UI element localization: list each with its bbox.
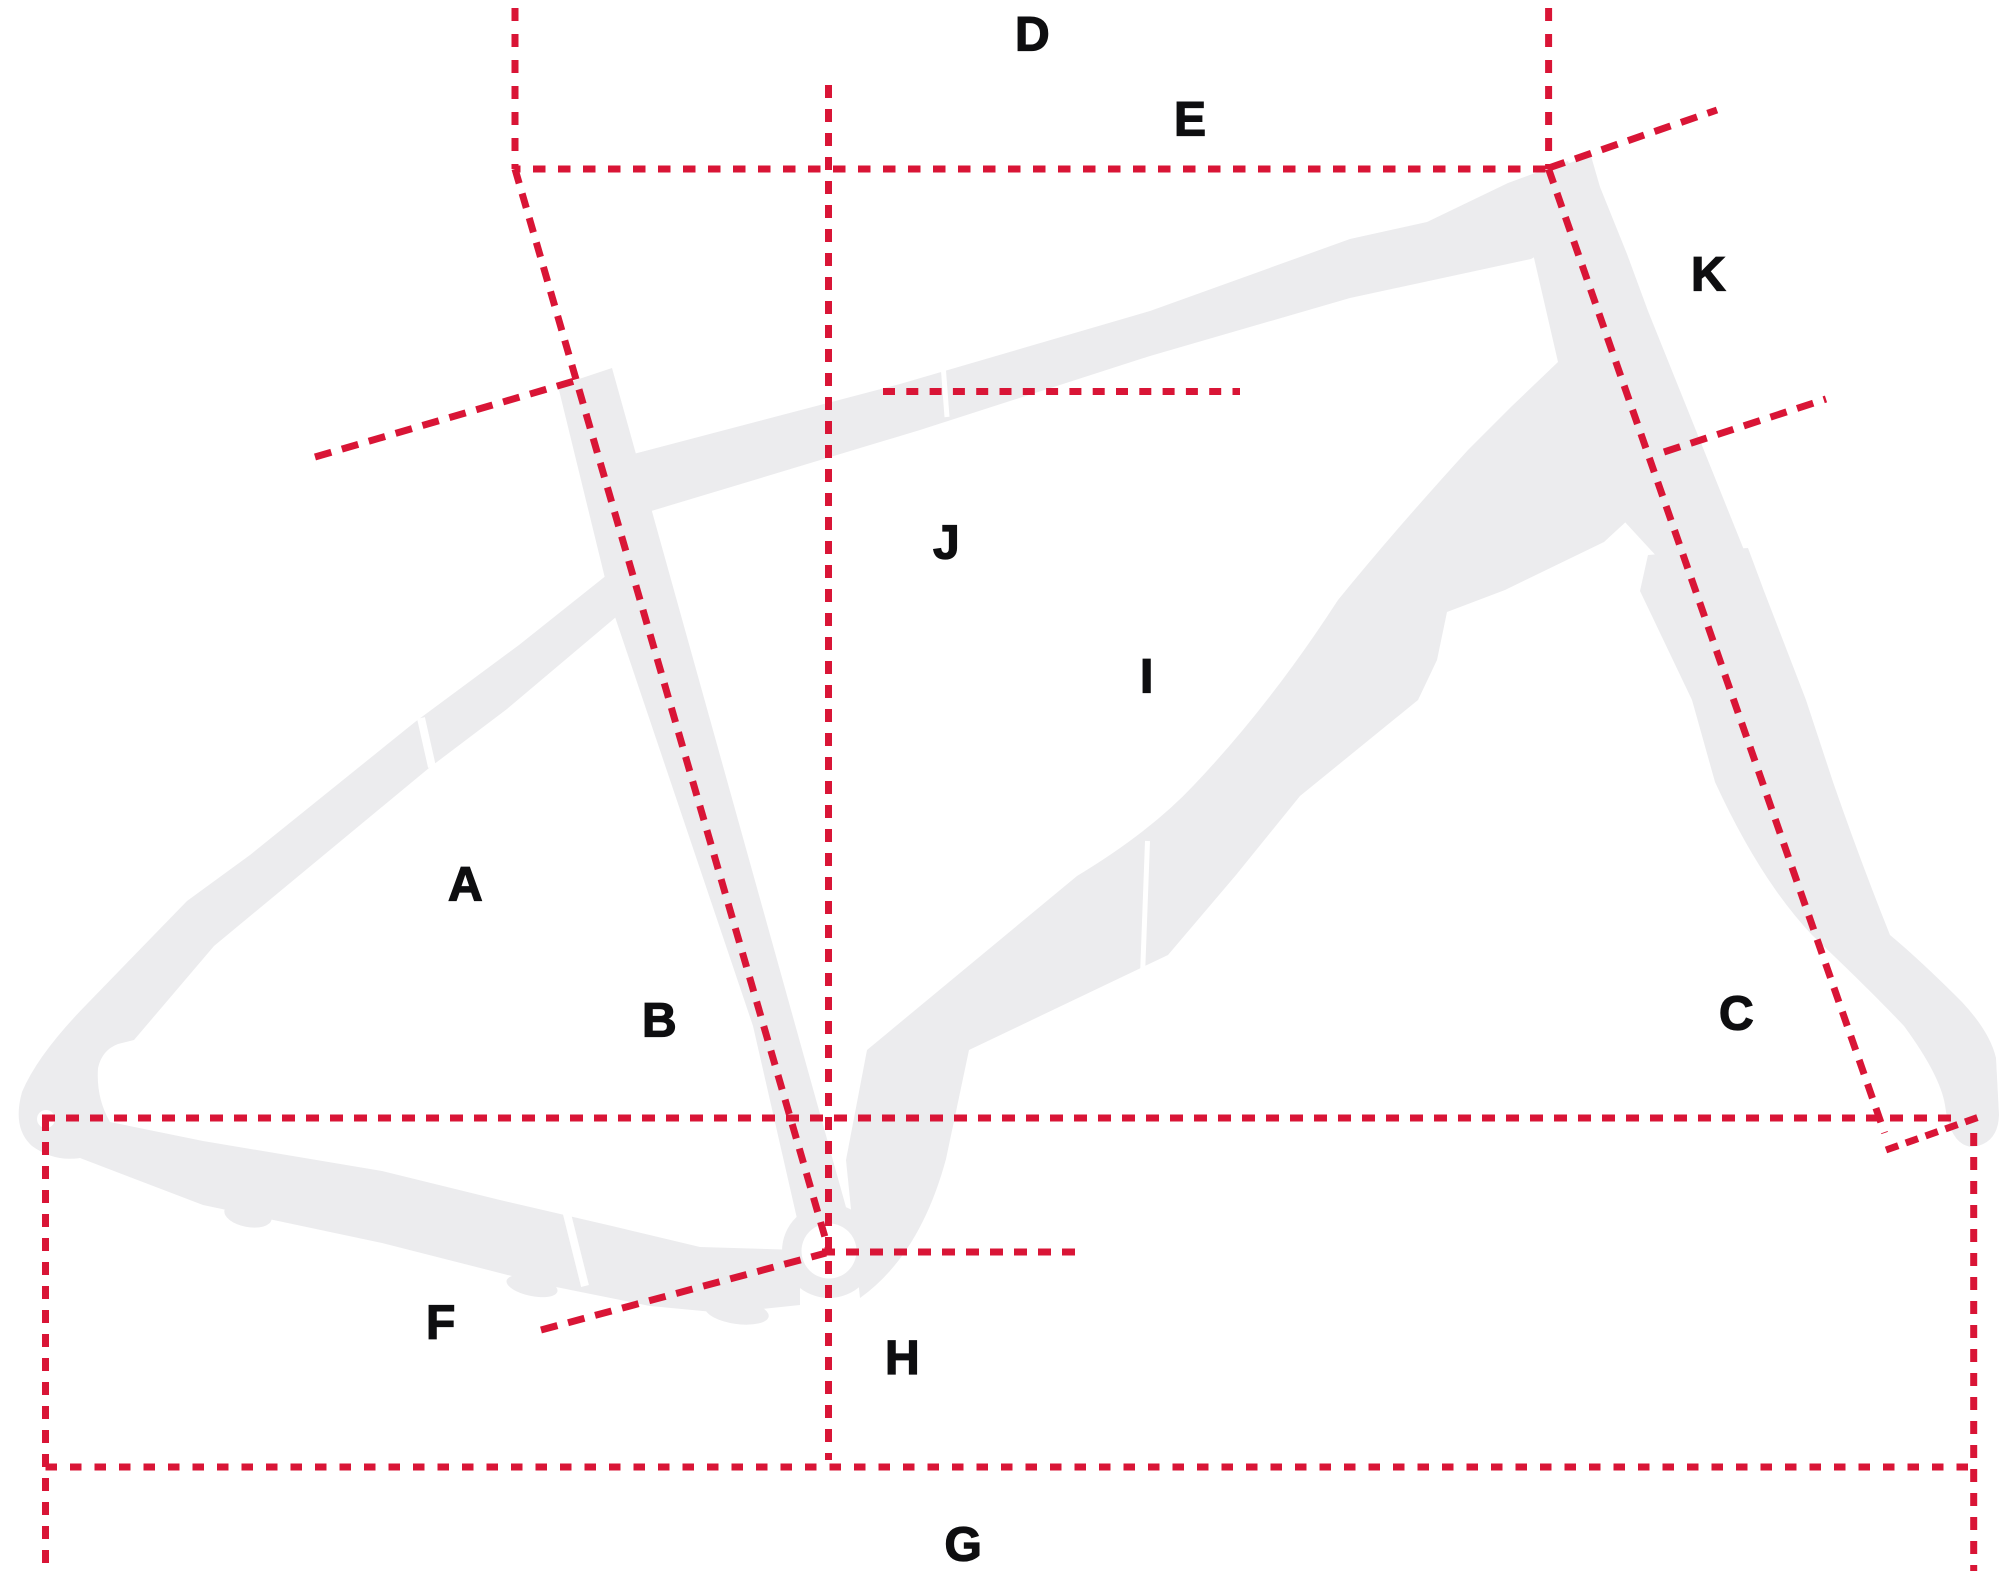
svg-text:J: J [933,517,960,570]
svg-text:G: G [945,1519,982,1571]
svg-text:B: B [642,995,677,1048]
svg-text:F: F [426,1297,455,1350]
svg-text:D: D [1015,9,1050,62]
svg-text:A: A [448,859,483,912]
svg-text:H: H [885,1332,920,1385]
svg-text:C: C [1719,988,1754,1041]
svg-text:K: K [1691,249,1726,302]
svg-text:E: E [1174,94,1206,147]
svg-text:I: I [1140,651,1153,704]
